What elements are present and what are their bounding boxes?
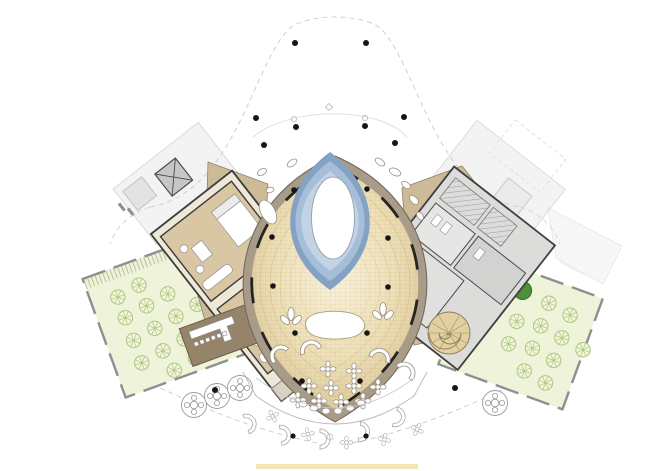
column bbox=[385, 284, 391, 290]
terrace-sofa bbox=[358, 422, 370, 443]
oculus-opening bbox=[312, 177, 355, 259]
seat bbox=[334, 408, 342, 414]
column bbox=[363, 40, 369, 46]
canopy-edge-curve bbox=[253, 114, 407, 137]
column bbox=[269, 234, 275, 240]
column bbox=[452, 385, 458, 391]
terrace-table bbox=[409, 421, 426, 438]
stool bbox=[211, 335, 216, 340]
seat bbox=[346, 405, 354, 411]
column bbox=[392, 140, 398, 146]
terrace-sofa bbox=[243, 411, 259, 433]
floor-plan-canvas bbox=[0, 0, 660, 471]
spiral-stair bbox=[428, 312, 470, 354]
pebble bbox=[256, 167, 268, 177]
column bbox=[291, 187, 297, 193]
column bbox=[270, 283, 276, 289]
canopy-anchor-markers bbox=[291, 103, 367, 121]
ghost-annex-outline bbox=[548, 208, 622, 284]
column bbox=[212, 387, 218, 393]
terrace-table bbox=[377, 432, 392, 447]
stool bbox=[216, 333, 221, 338]
stool bbox=[222, 331, 227, 336]
terrace-sofa bbox=[392, 407, 407, 429]
terrace-group bbox=[240, 400, 282, 436]
column bbox=[401, 114, 407, 120]
terrace-table bbox=[340, 436, 353, 449]
column bbox=[293, 124, 299, 130]
seat bbox=[322, 408, 330, 414]
column bbox=[357, 378, 363, 384]
column bbox=[290, 433, 295, 438]
outdoor-table bbox=[483, 391, 508, 416]
column bbox=[253, 115, 259, 121]
column bbox=[364, 330, 370, 336]
outdoor-table bbox=[182, 393, 207, 418]
stool bbox=[194, 341, 199, 346]
column bbox=[385, 235, 391, 241]
pebble bbox=[374, 156, 386, 167]
column bbox=[364, 186, 370, 192]
stool bbox=[199, 339, 204, 344]
column bbox=[299, 378, 305, 384]
pebble bbox=[286, 157, 298, 168]
terrace-sofa bbox=[320, 429, 330, 449]
column bbox=[292, 40, 298, 46]
pebble bbox=[388, 166, 402, 177]
terrace-group bbox=[278, 419, 316, 447]
column bbox=[261, 142, 267, 148]
accent-strip bbox=[256, 464, 418, 469]
column bbox=[292, 330, 298, 336]
terrace-group bbox=[320, 429, 353, 449]
anchor-diamond bbox=[325, 103, 332, 110]
outdoor-table bbox=[205, 384, 230, 409]
ghost-annex-far-east bbox=[548, 208, 622, 284]
terrace-table bbox=[300, 426, 315, 441]
terrace-group bbox=[357, 421, 394, 448]
floor-plan-drawing bbox=[0, 0, 660, 471]
column bbox=[363, 433, 368, 438]
outdoor-table bbox=[228, 376, 253, 401]
stool bbox=[205, 337, 210, 342]
reception-desk bbox=[306, 311, 365, 339]
column bbox=[362, 123, 368, 129]
